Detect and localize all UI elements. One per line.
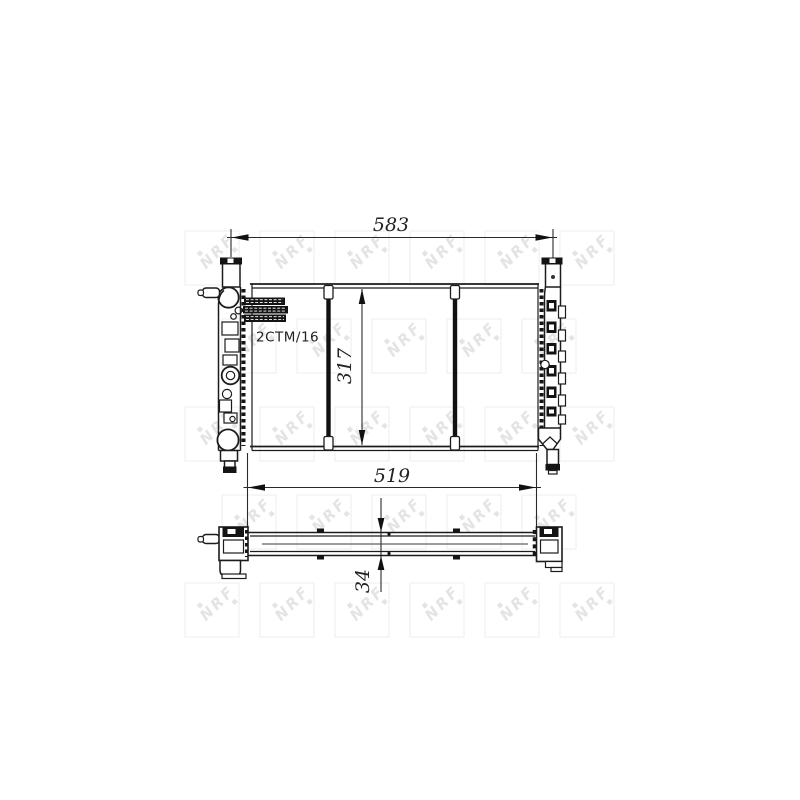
svg-text:NRF: NRF: [496, 582, 538, 624]
svg-text:NRF: NRF: [421, 230, 463, 272]
svg-text:NRF: NRF: [271, 582, 313, 624]
svg-text:NRF: NRF: [346, 230, 388, 272]
arrowhead-left: [248, 484, 265, 491]
svg-text:NRF: NRF: [571, 406, 613, 448]
side-view-right-fitting: [535, 527, 563, 572]
arrowhead-right: [519, 484, 536, 491]
side-pipe: [203, 535, 220, 544]
core-divider-left: [324, 286, 333, 451]
mount-clip: [453, 529, 460, 534]
svg-text:NRF: NRF: [271, 406, 313, 448]
svg-text:NRF: NRF: [496, 406, 538, 448]
dimension-value-317: 317: [334, 347, 356, 384]
mount-neck: [546, 261, 561, 287]
filler-neck: [223, 261, 241, 287]
svg-text:NRF: NRF: [458, 318, 500, 360]
side-view-body: [248, 529, 536, 560]
dimension-value-583: 583: [373, 214, 409, 236]
outlet-taper: [539, 428, 561, 450]
svg-text:NRF: NRF: [271, 230, 313, 272]
mount-clip: [317, 555, 324, 560]
svg-text:NRF: NRF: [496, 230, 538, 272]
arrowhead-up: [378, 556, 385, 570]
svg-text:NRF: NRF: [383, 318, 425, 360]
arrowhead-right: [536, 234, 553, 241]
lower-boss-circle: [217, 429, 238, 450]
technical-drawing: NRFNRFNRFNRFNRFNRFNRFNRFNRFNRFNRFNRFNRFN…: [0, 0, 800, 800]
svg-text:NRF: NRF: [571, 230, 613, 272]
svg-text:NRF: NRF: [308, 494, 350, 536]
drain-outlet: [221, 451, 238, 462]
svg-text:NRF: NRF: [458, 494, 500, 536]
cooling-fins-block: [243, 298, 288, 323]
arrowhead-up: [359, 289, 366, 304]
mount-foot: [220, 561, 241, 576]
product-code-label: 2CTM/16: [256, 330, 319, 346]
mount-clip: [317, 529, 324, 534]
mount-step: [546, 562, 563, 568]
dimension-depth: 34: [352, 498, 384, 593]
dimension-value-519: 519: [374, 465, 410, 487]
radiator-technical-drawing-page: NRFNRFNRFNRFNRFNRFNRFNRFNRFNRFNRFNRFNRFN…: [0, 0, 800, 800]
svg-text:NRF: NRF: [383, 494, 425, 536]
side-view-left-fitting: [198, 527, 248, 579]
filler-cap-circle: [218, 287, 238, 307]
dimension-value-34: 34: [352, 569, 374, 593]
outlet-pipe: [547, 450, 559, 465]
inlet-pipe: [203, 288, 220, 298]
mount-clip: [453, 555, 460, 560]
svg-text:NRF: NRF: [346, 406, 388, 448]
svg-text:NRF: NRF: [571, 582, 613, 624]
svg-text:NRF: NRF: [196, 582, 238, 624]
svg-text:NRF: NRF: [421, 582, 463, 624]
